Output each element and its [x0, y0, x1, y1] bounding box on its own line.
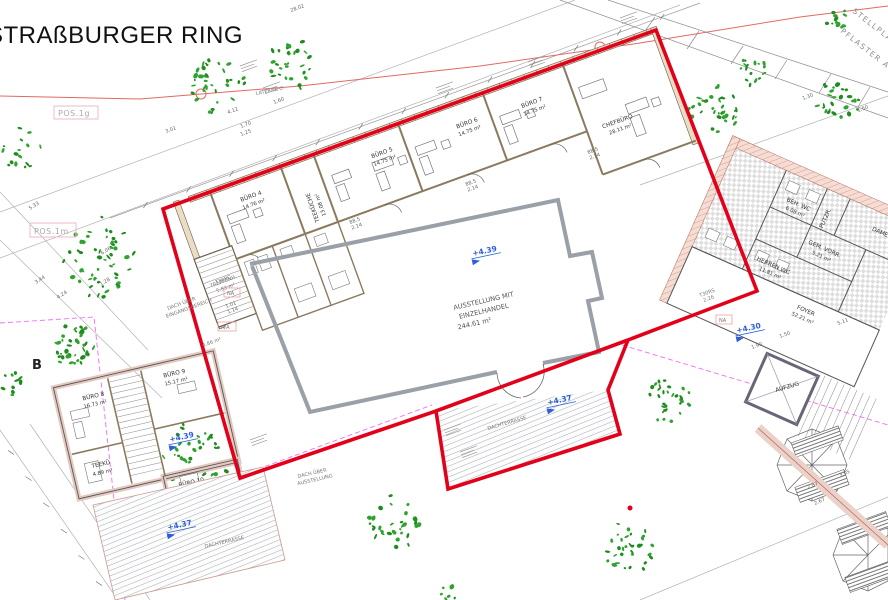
shrub-dot — [299, 64, 305, 68]
shrub-dot — [613, 554, 617, 557]
shrub-dot — [373, 534, 377, 540]
dimension-ticks — [8, 14, 664, 586]
shrub-dot — [622, 547, 625, 552]
shrub-dot — [64, 348, 69, 354]
shrub-dot — [1, 148, 5, 154]
shrub-dot — [270, 74, 276, 77]
east-wing: BEH. WC 6.08 m² PUTZR. DAMEN GEM. VORR. … — [632, 136, 888, 459]
shrub-dot — [396, 537, 400, 542]
sanitary-fixtures — [244, 231, 350, 315]
shrub-dot — [204, 80, 208, 83]
shrub-dot — [194, 79, 196, 82]
shrub-dot — [67, 250, 72, 255]
shrub-dot — [103, 259, 107, 261]
shrub-dot — [226, 79, 230, 84]
shrub-dot — [369, 522, 372, 525]
shrub-dot — [669, 419, 673, 423]
door-size-tag: 88.52.14 — [587, 146, 602, 161]
shrub-dot — [830, 101, 835, 107]
shrub-dot — [653, 382, 658, 387]
shrub-dot — [643, 561, 648, 566]
shrub-dot — [10, 389, 15, 394]
shrub-dot — [446, 594, 451, 598]
shrub-dot — [749, 71, 753, 75]
shrub-dot — [629, 532, 632, 536]
shrub-dot — [711, 107, 715, 111]
dim-label: 4.12 — [227, 106, 240, 115]
shrub-dot — [627, 527, 631, 531]
dim-label: 28.02 — [290, 3, 306, 14]
shrub-dot — [753, 78, 758, 84]
shrub-dot — [202, 61, 205, 67]
shrub-dot — [91, 273, 94, 276]
shrub-dot — [23, 165, 27, 169]
shrub-dot — [453, 596, 456, 599]
roof-terrace — [436, 390, 620, 489]
dim-label: 1.28 — [99, 277, 112, 288]
lantern-label: LATERNE ∅ — [255, 86, 284, 97]
shrub-dot — [230, 97, 236, 102]
hall-outline — [250, 200, 602, 412]
shrub-dot — [69, 274, 75, 279]
shrub-dot — [58, 360, 63, 363]
shrub-dot — [229, 79, 233, 82]
shrub-dot — [79, 360, 83, 365]
shrub-dot — [60, 353, 62, 355]
shrub-dot — [297, 82, 303, 88]
shrub-dot — [82, 347, 86, 353]
shrub-dot — [303, 75, 308, 80]
shrub-dot — [10, 373, 14, 377]
door-size-tag: 88.52.14 — [349, 216, 364, 231]
shrub-dot — [667, 385, 672, 389]
shrub-dot — [78, 279, 82, 283]
shrub-dot — [628, 565, 632, 570]
shrub-dot — [55, 350, 59, 355]
dim-label: 4.24 — [56, 290, 69, 301]
shrub-dot — [216, 101, 219, 104]
spiral-stairs — [777, 429, 888, 591]
shrub-dot — [732, 120, 738, 126]
dim-label: 1.50 — [779, 330, 792, 339]
shrub-dot — [378, 525, 382, 530]
shrub-dot — [763, 65, 767, 69]
shrub-dot — [14, 371, 17, 375]
shrub-dot — [202, 442, 205, 445]
shrub-dot — [709, 95, 714, 100]
section-marker-b: B — [32, 358, 42, 373]
shrub-dot — [61, 334, 65, 338]
shrub-dot — [674, 394, 679, 399]
shrub-dot — [100, 215, 104, 218]
shrub-dot — [617, 546, 621, 551]
shrub-dot — [17, 149, 21, 151]
shrub-dot — [734, 116, 737, 119]
shrub-dot — [60, 355, 65, 360]
shrub-dot — [225, 83, 230, 88]
shrub-dot — [831, 11, 836, 15]
shrub-dot — [210, 84, 214, 87]
shrub-dot — [3, 374, 7, 378]
dim-label: 1.30 — [802, 92, 815, 101]
shrub-dot — [74, 259, 78, 263]
shrub-dot — [286, 62, 289, 65]
shrub-dot — [124, 255, 130, 260]
shrub-dot — [761, 71, 766, 75]
pos1g-tag: POS.1g — [58, 109, 90, 118]
level-marker-foyer: +4.30 — [734, 320, 767, 342]
shrub-dot — [662, 417, 666, 421]
shrub-dot — [715, 130, 720, 133]
shrub-dot — [9, 160, 14, 165]
na-tag-1: NA — [227, 291, 235, 297]
shrub-dot — [843, 105, 849, 110]
dim-label: 1.60 — [273, 96, 286, 105]
shrub-dot — [716, 114, 722, 119]
shrub-dot — [270, 47, 275, 53]
shrub-dot — [834, 81, 841, 88]
shrub-dot — [88, 277, 93, 280]
shrub-dot — [223, 468, 230, 474]
shrub-dot — [388, 494, 393, 498]
shrub-dot — [89, 284, 94, 288]
shrub-dot — [619, 552, 624, 557]
shrub-dot — [131, 250, 136, 256]
shrub-dot — [188, 457, 192, 461]
shrub-dot — [843, 9, 847, 13]
pos1m-tag: POS.1m — [34, 227, 69, 236]
shrub-dot — [839, 115, 843, 119]
shrub-dot — [25, 143, 30, 148]
shrub-dot — [671, 392, 675, 397]
shrub-dot — [112, 263, 116, 266]
shrub-dot — [226, 61, 232, 66]
shrub-dot — [616, 533, 619, 536]
shrub-dot — [105, 235, 108, 238]
shrub-dot — [857, 98, 861, 101]
shrub-dot — [111, 236, 116, 240]
shrub-dot — [650, 543, 655, 548]
shrub-dot — [27, 131, 32, 134]
shrub-dot — [390, 522, 395, 526]
shrub-dot — [74, 354, 77, 357]
shrub-dot — [679, 411, 682, 415]
shrub-dot — [197, 439, 201, 444]
shrub-dot — [624, 535, 629, 539]
shrub-dot — [194, 97, 200, 102]
shrub-dot — [648, 392, 652, 396]
shrub-dot — [198, 445, 203, 450]
site-plan-drawing: STELLPLÄTZE PFLASTER AUSF. LATERNE ∅ — [0, 0, 888, 600]
shrub-dot — [55, 340, 62, 345]
shrub-dot — [832, 86, 835, 89]
shrub-dot — [278, 73, 282, 76]
shrub-dot — [389, 502, 393, 506]
shrub-dot — [96, 268, 99, 271]
shrub-dot — [198, 74, 204, 78]
shrub-dot — [744, 78, 748, 82]
shrub-dot — [114, 276, 117, 279]
shrub-dot — [386, 531, 392, 536]
shrub-dot — [681, 386, 686, 391]
east-wall — [651, 26, 699, 145]
shrub-dot — [191, 84, 196, 87]
shrub-dot — [713, 110, 716, 115]
shrub-dot — [758, 77, 762, 80]
shrub-dot — [68, 338, 73, 343]
shrub-dot — [847, 95, 853, 98]
shrub-dot — [196, 435, 200, 439]
shrub-dot — [241, 75, 247, 80]
shrub-dot — [662, 390, 664, 394]
shrub-dot — [406, 502, 410, 506]
shrub-dot — [841, 88, 845, 91]
shrub-dot — [814, 104, 820, 107]
shrub-dot — [367, 515, 373, 520]
shrub-dot — [641, 566, 645, 571]
shrub-dot — [105, 228, 108, 232]
shrub-dot — [831, 22, 834, 24]
shrub-dot — [217, 61, 221, 65]
shrub-dot — [616, 523, 620, 526]
shrub-dot — [847, 111, 852, 117]
shrub-dot — [187, 460, 191, 463]
shrub-dot — [192, 72, 199, 79]
shrub-dot — [623, 567, 626, 570]
shrub-dot — [741, 58, 745, 62]
shrub-dot — [213, 441, 217, 445]
na-tag-2: NA — [719, 318, 727, 324]
shrub-dot — [237, 80, 240, 84]
shrub-dot — [7, 163, 11, 166]
shrub-dot — [17, 127, 22, 130]
shrub-dot — [275, 63, 280, 67]
text-smudge — [620, 12, 639, 24]
shrub-dot — [121, 232, 126, 235]
shrub-dot — [86, 235, 90, 238]
shrub-dot — [177, 455, 180, 457]
shrub-dot — [162, 454, 166, 459]
shrub-dot — [289, 77, 293, 80]
shrub-dot — [211, 108, 215, 111]
dim-label: 5.33 — [28, 201, 41, 212]
text-smudge — [436, 82, 455, 94]
shrub-dot — [63, 324, 68, 329]
shrub-dot — [439, 592, 443, 595]
office-furniture — [226, 61, 668, 277]
shrub-dot — [113, 272, 119, 277]
shrub-dot — [284, 76, 287, 80]
shrub-dot — [101, 294, 106, 299]
shrub-dot — [19, 138, 23, 142]
shrub-dot — [657, 379, 660, 384]
shrub-dot — [400, 531, 404, 535]
shrub-dot — [406, 533, 410, 539]
shrub-dot — [624, 545, 628, 549]
shrub-dot — [739, 67, 742, 70]
shrub-dot — [605, 550, 611, 553]
shrub-dot — [173, 453, 176, 456]
shrub-dot — [718, 112, 720, 115]
shrub-dot — [279, 67, 283, 70]
shrub-dot — [87, 293, 91, 297]
level-marker-annex: +4.39 — [167, 429, 200, 451]
annex-partitions — [57, 354, 235, 495]
shrub-dot — [753, 60, 756, 65]
shrub-dot — [213, 472, 218, 477]
shrub-dot — [731, 94, 735, 99]
page-title: STRAßBURGER RING — [0, 22, 243, 49]
shrub-dot — [620, 538, 623, 542]
shrub-dot — [87, 231, 92, 233]
shrub-dot — [663, 379, 667, 382]
shrub-dot — [407, 543, 410, 547]
shrub-dot — [302, 70, 306, 75]
shrub-dot — [222, 68, 226, 74]
shrub-dot — [10, 394, 14, 396]
shrub-dot — [14, 161, 18, 166]
shrub-dot — [0, 386, 6, 391]
shrub-dot — [93, 248, 97, 252]
dim-label: 5.11 — [837, 317, 850, 326]
shrub-dot — [179, 426, 185, 430]
shrub-dot — [108, 229, 113, 234]
shrub-dot — [91, 345, 95, 351]
shrub-dot — [127, 268, 132, 271]
shrub-dot — [399, 528, 402, 531]
red-survey-dot — [628, 506, 633, 511]
shrub-dot — [187, 441, 191, 446]
shrub-dot — [204, 432, 207, 435]
shrub-dot — [39, 144, 42, 149]
dim-label: 1.70 — [240, 120, 253, 129]
dim-label: 3.01 — [165, 125, 178, 134]
shrub-dot — [656, 418, 660, 422]
shrub-dot — [644, 529, 647, 533]
shrub-dot — [696, 96, 702, 100]
shrub-dot — [757, 63, 760, 66]
shrub-dot — [61, 339, 63, 342]
shrub-dot — [838, 94, 844, 100]
shrub-dot — [687, 391, 690, 394]
shrub-dot — [442, 586, 446, 590]
shrub-dot — [76, 359, 80, 363]
shrub-dot — [242, 81, 247, 86]
shrub-dot — [207, 58, 211, 63]
shrub-dot — [610, 538, 613, 542]
shrub-dot — [448, 583, 455, 590]
shrub-dot — [853, 98, 857, 103]
aa-tag: A/A — [221, 325, 230, 331]
shrub-dot — [11, 385, 16, 390]
shrub-dot — [711, 127, 715, 130]
shrub-dot — [400, 521, 404, 524]
shrub-dot — [300, 40, 306, 44]
shrub-dot — [200, 65, 206, 71]
shrub-dot — [697, 102, 702, 107]
stair-benches — [791, 426, 888, 593]
main-building: BÜRO 4 14.76 m² TEEKÜCHE 13.08 m² BÜRO 5… — [173, 26, 708, 344]
parking-bays — [560, 0, 888, 118]
shrub-dot — [268, 68, 274, 74]
shrub-dot — [66, 344, 72, 347]
site-plan-canvas: STELLPLÄTZE PFLASTER AUSF. LATERNE ∅ — [0, 0, 888, 600]
shrub-dot — [657, 394, 661, 399]
shrub-dot — [306, 54, 312, 60]
shrub-dot — [825, 21, 829, 25]
shrub-dot — [666, 390, 669, 394]
shrub-dot — [720, 104, 725, 109]
shrub-dot — [606, 559, 610, 563]
door-size-tag: 88.52.14 — [465, 178, 480, 193]
shrub-dot — [104, 289, 110, 294]
shrub-dot — [285, 65, 289, 68]
shrub-dot — [195, 67, 200, 73]
text-smudge — [250, 434, 269, 446]
annex-stair-treads — [110, 375, 163, 476]
shrub-dot — [842, 13, 847, 18]
shrub-dot — [109, 252, 114, 257]
shrub-dot — [724, 119, 728, 123]
shrub-dot — [829, 89, 835, 94]
dim-label: 2.67 — [813, 497, 826, 507]
shrub-dot — [3, 145, 6, 147]
shrub-dot — [377, 505, 384, 511]
shrub-dot — [191, 447, 197, 453]
dim-label: 1.90 — [751, 341, 764, 350]
shrub-dot — [844, 88, 848, 92]
small-room-area: 4.86 m² — [202, 337, 222, 349]
shrub-dot — [303, 50, 308, 54]
pos-tags: POS.1g POS.1m — [30, 106, 98, 237]
shrub-dot — [732, 115, 736, 121]
level-marker-hall: +4.39 — [470, 243, 503, 265]
shrub-dot — [404, 511, 408, 516]
shrub-dot — [391, 529, 398, 536]
shrub-dot — [308, 67, 311, 70]
shrub-dot — [393, 544, 399, 550]
shrub-dot — [214, 446, 218, 449]
shrub-dot — [68, 361, 74, 365]
shrub-dot — [657, 386, 662, 391]
shrub-dot — [699, 110, 703, 114]
dim-label: 3.44 — [34, 275, 47, 286]
shrub-dot — [748, 83, 751, 88]
text-smudge — [240, 60, 259, 72]
